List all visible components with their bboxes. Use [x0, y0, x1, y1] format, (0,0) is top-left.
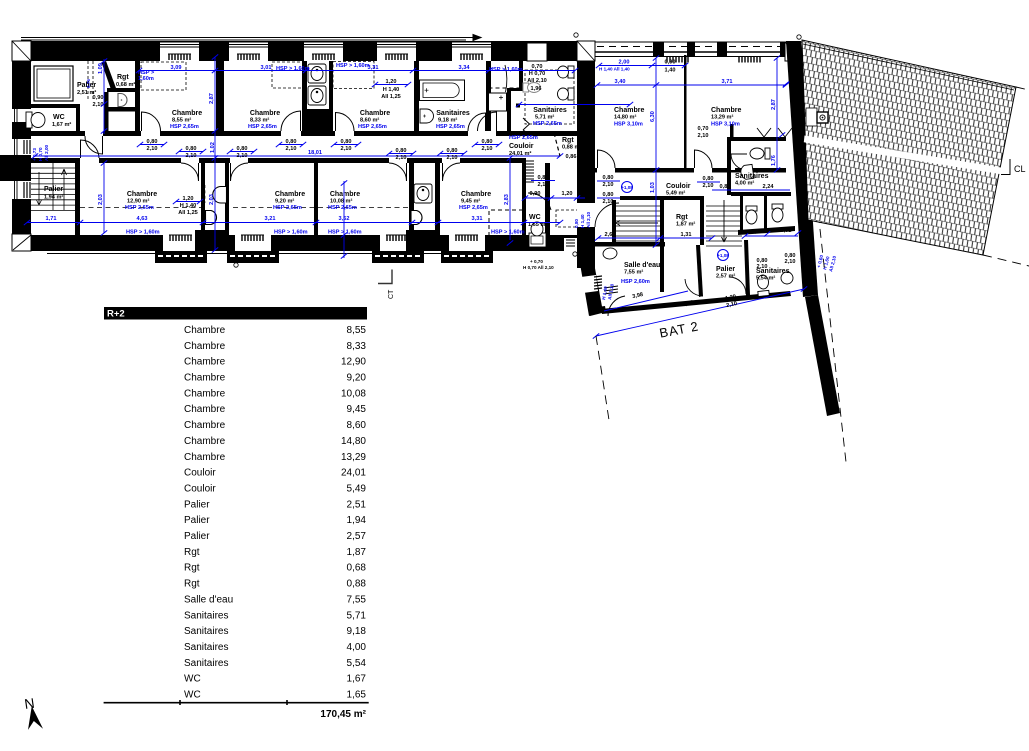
- svg-text:7,55: 7,55: [347, 594, 367, 605]
- svg-text:2,10: 2,10: [703, 183, 714, 189]
- svg-text:1,96: 1,96: [531, 86, 542, 92]
- svg-text:Chambre: Chambre: [184, 404, 226, 415]
- svg-text:170,45 m²: 170,45 m²: [320, 709, 366, 720]
- svg-text:HSP 2,65m: HSP 2,65m: [358, 124, 387, 130]
- svg-text:1,87 m²: 1,87 m²: [676, 221, 695, 228]
- svg-text:8,33 m²: 8,33 m²: [250, 117, 269, 124]
- svg-text:All 1,25: All 1,25: [178, 210, 198, 216]
- svg-text:2,10: 2,10: [482, 146, 493, 152]
- svg-text:2,10: 2,10: [447, 155, 458, 161]
- svg-text:5,49: 5,49: [347, 484, 367, 495]
- svg-text:1,87: 1,87: [347, 547, 367, 558]
- svg-text:2,10: 2,10: [757, 264, 768, 270]
- svg-text:0,86: 0,86: [566, 154, 577, 160]
- svg-text:All 2,10: All 2,10: [586, 211, 591, 228]
- svg-text:Chambre: Chambre: [184, 452, 226, 463]
- svg-text:H 1,40 All 1,40: H 1,40 All 1,40: [599, 67, 630, 72]
- svg-text:H 1,40: H 1,40: [180, 203, 196, 209]
- svg-text:Sanitaires: Sanitaires: [184, 642, 228, 653]
- svg-text:Couloir: Couloir: [666, 183, 691, 190]
- svg-text:9,18 m²: 9,18 m²: [438, 117, 457, 124]
- svg-text:Rgt: Rgt: [184, 563, 200, 574]
- svg-text:Chambre: Chambre: [275, 191, 305, 198]
- svg-text:HSP > 1,60m: HSP > 1,60m: [489, 67, 523, 73]
- svg-text:2,87: 2,87: [209, 93, 215, 104]
- svg-text:0,80: 0,80: [603, 192, 614, 198]
- svg-text:Sanitaires: Sanitaires: [436, 110, 470, 117]
- svg-text:9,20: 9,20: [347, 373, 367, 384]
- svg-text:1,09: 1,09: [98, 63, 104, 74]
- svg-text:3,34: 3,34: [459, 65, 471, 71]
- svg-text:2,57: 2,57: [347, 531, 367, 542]
- svg-text:24,01: 24,01: [341, 468, 366, 479]
- svg-text:0,88 m²: 0,88 m²: [562, 144, 581, 151]
- svg-text:8,60 m²: 8,60 m²: [360, 117, 379, 124]
- svg-text:WC: WC: [53, 114, 65, 121]
- svg-text:9,18: 9,18: [347, 626, 367, 637]
- svg-text:8,60: 8,60: [347, 420, 367, 431]
- svg-text:HSP 2,65m: HSP 2,65m: [170, 124, 199, 130]
- svg-text:+1,08: +1,08: [717, 253, 729, 258]
- svg-text:Chambre: Chambre: [184, 341, 226, 352]
- svg-text:Sanitaires: Sanitaires: [184, 626, 228, 637]
- svg-text:2,51: 2,51: [347, 499, 367, 510]
- svg-text:R+2: R+2: [107, 309, 125, 320]
- svg-text:Chambre: Chambre: [711, 107, 741, 114]
- svg-text:HSP > 1,60m: HSP > 1,60m: [126, 230, 160, 236]
- svg-text:Couloir: Couloir: [184, 468, 216, 479]
- svg-text:2,10: 2,10: [396, 155, 407, 161]
- svg-text:1,76: 1,76: [771, 155, 777, 166]
- svg-text:HSP 2,65m: HSP 2,65m: [248, 124, 277, 130]
- svg-text:Chambre: Chambre: [127, 191, 157, 198]
- svg-text:4,00 m²: 4,00 m²: [735, 180, 754, 187]
- svg-text:Rgt: Rgt: [184, 547, 200, 558]
- svg-text:10,08: 10,08: [341, 388, 366, 399]
- svg-text:All 2,10: All 2,10: [527, 78, 547, 84]
- svg-text:CT: CT: [388, 289, 395, 299]
- svg-text:9,45 m²: 9,45 m²: [461, 198, 480, 205]
- svg-text:0,68: 0,68: [347, 563, 367, 574]
- svg-text:1,67 m²: 1,67 m²: [52, 121, 71, 128]
- svg-text:5,71: 5,71: [347, 610, 367, 621]
- svg-text:1,94: 1,94: [347, 515, 367, 526]
- svg-text:2,69: 2,69: [605, 232, 616, 238]
- svg-text:0,70: 0,70: [532, 64, 543, 70]
- svg-text:1,67: 1,67: [347, 674, 367, 685]
- svg-text:4,00: 4,00: [347, 642, 367, 653]
- svg-text:1,20: 1,20: [562, 191, 573, 197]
- svg-text:Salle d'eau: Salle d'eau: [184, 594, 233, 605]
- svg-text:HSP 2,65m: HSP 2,65m: [509, 135, 538, 141]
- svg-text:6,30: 6,30: [650, 111, 656, 122]
- svg-text:14,80 m²: 14,80 m²: [614, 114, 637, 121]
- svg-text:Chambre: Chambre: [172, 110, 202, 117]
- svg-text:2,10: 2,10: [698, 133, 709, 139]
- svg-text:CL: CL: [1014, 164, 1026, 174]
- svg-text:3,09: 3,09: [171, 65, 182, 71]
- svg-text:Palier: Palier: [184, 531, 210, 542]
- svg-text:All 1,25: All 1,25: [381, 94, 401, 100]
- svg-text:2,10: 2,10: [186, 153, 197, 159]
- svg-text:HSP 3,10m: HSP 3,10m: [614, 122, 643, 128]
- svg-text:10,08 m²: 10,08 m²: [330, 198, 353, 205]
- svg-text:WC: WC: [529, 214, 541, 221]
- svg-text:Chambre: Chambre: [184, 325, 226, 336]
- svg-text:Chambre: Chambre: [360, 110, 390, 117]
- svg-text:Rgt: Rgt: [676, 214, 688, 221]
- svg-text:3,71: 3,71: [722, 79, 733, 85]
- svg-text:Palier: Palier: [184, 515, 210, 526]
- svg-text:8,55 m²: 8,55 m²: [172, 117, 191, 124]
- svg-text:HSP 2,65m: HSP 2,65m: [533, 121, 562, 127]
- svg-text:2,03: 2,03: [98, 194, 104, 205]
- svg-text:0,88: 0,88: [347, 579, 367, 590]
- svg-text:H 0,70: H 0,70: [38, 147, 43, 161]
- svg-text:9,20 m²: 9,20 m²: [275, 198, 294, 205]
- svg-text:Rgt: Rgt: [184, 579, 200, 590]
- svg-text:HSP 2,65m: HSP 2,65m: [328, 205, 357, 211]
- svg-text:HSP 2,65m: HSP 2,65m: [459, 205, 488, 211]
- svg-text:2,10: 2,10: [286, 146, 297, 152]
- svg-text:Chambre: Chambre: [184, 388, 226, 399]
- svg-text:HSP 2,65m: HSP 2,65m: [436, 124, 465, 130]
- svg-text:Sanitaires: Sanitaires: [184, 610, 228, 621]
- svg-text:4,63: 4,63: [137, 216, 148, 222]
- svg-text:+ 0,73: + 0,73: [32, 148, 37, 161]
- svg-text:Sanitaires: Sanitaires: [735, 173, 769, 180]
- svg-text:2,10: 2,10: [538, 182, 549, 188]
- svg-text:H 0,70: H 0,70: [529, 71, 545, 77]
- svg-text:Sanitaires: Sanitaires: [184, 658, 228, 669]
- svg-text:5,49 m²: 5,49 m²: [666, 190, 685, 197]
- svg-text:0,80: 0,80: [603, 175, 614, 181]
- svg-text:2,83: 2,83: [504, 194, 510, 205]
- svg-text:3,31: 3,31: [472, 216, 483, 222]
- svg-text:2,57 m²: 2,57 m²: [716, 273, 735, 280]
- svg-text:1,71: 1,71: [46, 216, 57, 222]
- svg-text:0,90: 0,90: [665, 60, 676, 66]
- svg-text:0,84: 0,84: [720, 184, 732, 190]
- svg-text:All 2,00: All 2,00: [44, 144, 49, 161]
- svg-text:Palier: Palier: [184, 499, 210, 510]
- svg-text:0,90: 0,90: [530, 191, 541, 197]
- svg-text:9,45: 9,45: [347, 404, 367, 415]
- svg-text:Rgt: Rgt: [117, 74, 129, 81]
- svg-text:Couloir: Couloir: [509, 143, 534, 150]
- svg-text:2,10: 2,10: [603, 182, 614, 188]
- svg-text:0,90: 0,90: [93, 95, 104, 101]
- svg-text:2,10: 2,10: [237, 153, 248, 159]
- svg-text:2,10: 2,10: [341, 146, 352, 152]
- svg-text:1,40: 1,40: [665, 68, 676, 74]
- svg-text:8,33: 8,33: [347, 341, 367, 352]
- svg-text:WC: WC: [184, 690, 201, 701]
- svg-text:HSP 3,10m: HSP 3,10m: [711, 122, 740, 128]
- svg-text:HSP > 1,60m: HSP > 1,60m: [336, 63, 370, 69]
- svg-text:5,54: 5,54: [347, 658, 367, 669]
- svg-text:2,10: 2,10: [785, 259, 796, 265]
- svg-text:0,70: 0,70: [698, 126, 709, 132]
- svg-text:3,01: 3,01: [261, 65, 272, 71]
- svg-text:HSP > 1,60m: HSP > 1,60m: [276, 66, 310, 72]
- svg-text:2,87: 2,87: [771, 99, 777, 110]
- svg-text:1,65: 1,65: [347, 690, 367, 701]
- svg-text:12,90: 12,90: [341, 357, 366, 368]
- svg-text:Palier: Palier: [44, 186, 63, 193]
- svg-text:1,60m: 1,60m: [138, 76, 154, 82]
- svg-text:1,20: 1,20: [386, 79, 397, 85]
- svg-text:WC: WC: [184, 674, 201, 685]
- svg-text:3,40: 3,40: [615, 79, 626, 85]
- svg-text:5,71 m²: 5,71 m²: [535, 114, 554, 121]
- svg-text:Sanitaires: Sanitaires: [533, 107, 567, 114]
- svg-text:Palier: Palier: [716, 266, 735, 273]
- svg-text:2,10: 2,10: [93, 102, 104, 108]
- svg-text:Chambre: Chambre: [184, 420, 226, 431]
- svg-text:H 1,40: H 1,40: [580, 214, 585, 228]
- svg-text:0,80: 0,80: [574, 219, 579, 228]
- svg-text:Rgt: Rgt: [562, 137, 574, 144]
- svg-text:HSP 2,60m: HSP 2,60m: [621, 279, 650, 285]
- svg-text:Chambre: Chambre: [461, 191, 491, 198]
- svg-text:Couloir: Couloir: [184, 484, 216, 495]
- svg-text:HSP > 1,60m: HSP > 1,60m: [491, 230, 525, 236]
- svg-text:HSP 2,65m: HSP 2,65m: [125, 205, 154, 211]
- svg-text:0,95: 0,95: [752, 229, 763, 235]
- svg-text:Salle d'eau: Salle d'eau: [624, 262, 660, 269]
- svg-text:1,03: 1,03: [650, 182, 656, 193]
- svg-text:HSP > 1,60m: HSP > 1,60m: [274, 230, 308, 236]
- svg-text:2,10: 2,10: [147, 146, 158, 152]
- svg-text:2,24: 2,24: [763, 184, 775, 190]
- svg-text:13,29: 13,29: [341, 452, 366, 463]
- svg-text:Chambre: Chambre: [614, 107, 644, 114]
- svg-text:1,31: 1,31: [681, 232, 692, 238]
- svg-text:0,68 m²: 0,68 m²: [116, 81, 135, 88]
- svg-text:12,90 m²: 12,90 m²: [127, 198, 150, 205]
- svg-text:HSP 2,65m: HSP 2,65m: [273, 205, 302, 211]
- svg-text:5,54 m²: 5,54 m²: [756, 275, 775, 282]
- svg-text:+1,08: +1,08: [621, 185, 633, 190]
- svg-text:1,02: 1,02: [210, 142, 216, 153]
- svg-text:8,55: 8,55: [347, 325, 367, 336]
- svg-text:Chambre: Chambre: [184, 436, 226, 447]
- svg-text:0,92: 0,92: [781, 228, 792, 234]
- svg-text:0,76: 0,76: [86, 79, 91, 88]
- svg-text:H 0,70 All 2,10: H 0,70 All 2,10: [523, 265, 554, 270]
- svg-text:14,80: 14,80: [341, 436, 366, 447]
- svg-text:Chambre: Chambre: [330, 191, 360, 198]
- svg-text:Chambre: Chambre: [184, 373, 226, 384]
- svg-text:Chambre: Chambre: [250, 110, 280, 117]
- svg-text:Chambre: Chambre: [184, 357, 226, 368]
- svg-text:+ 0,70: + 0,70: [530, 259, 543, 264]
- svg-text:1,94 m²: 1,94 m²: [44, 194, 63, 201]
- svg-text:13,29 m²: 13,29 m²: [711, 114, 734, 121]
- svg-text:2,10: 2,10: [603, 199, 614, 205]
- svg-text:18,01: 18,01: [308, 150, 322, 156]
- svg-text:0,80: 0,80: [703, 176, 714, 182]
- svg-text:2,00: 2,00: [619, 60, 630, 66]
- svg-text:7,55 m²: 7,55 m²: [624, 269, 643, 276]
- svg-text:H 1,40: H 1,40: [383, 87, 399, 93]
- svg-text:3,21: 3,21: [265, 216, 276, 222]
- svg-text:2,03: 2,03: [209, 194, 215, 205]
